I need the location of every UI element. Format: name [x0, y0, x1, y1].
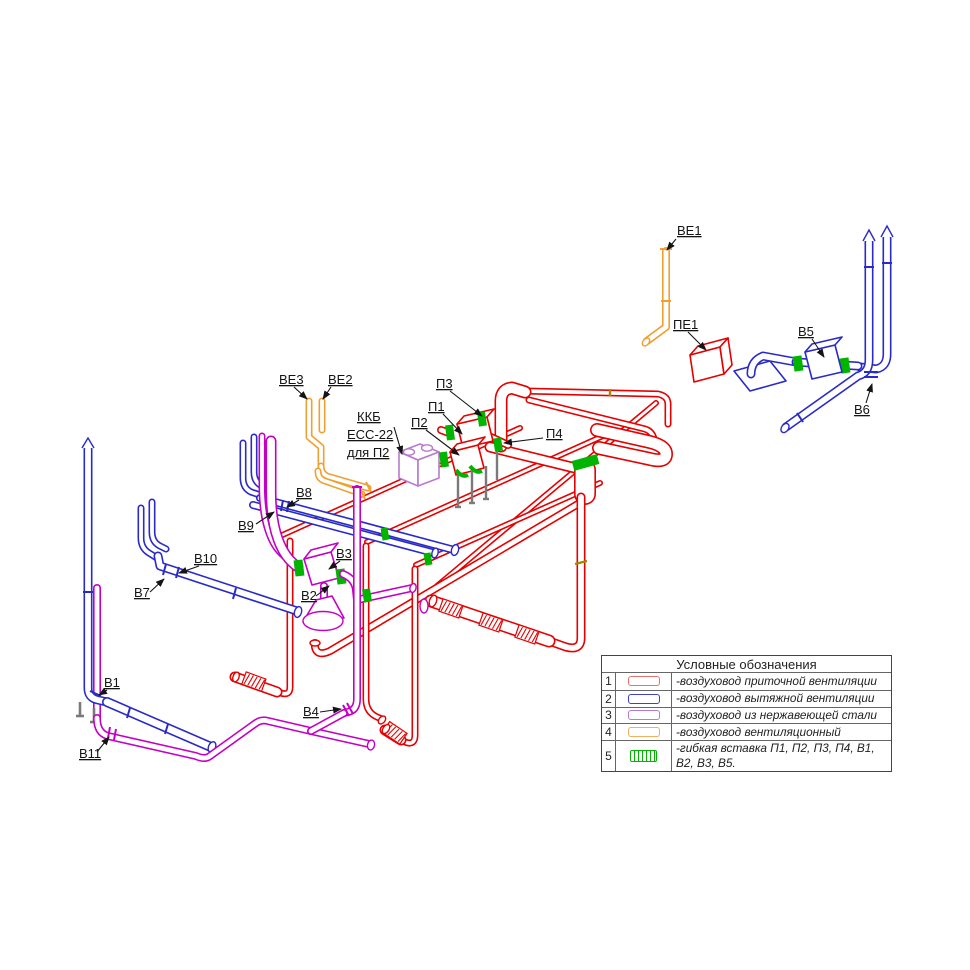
label-v8: В8 — [296, 485, 312, 500]
flex-insert-v5-left — [797, 356, 799, 371]
flex-insert-v3-left — [298, 560, 300, 576]
label-pe1: ПЕ1 — [673, 317, 698, 332]
label-kkb-2: ЕСС-22 — [347, 427, 393, 442]
legend-row-num: 4 — [602, 724, 616, 741]
legend-swatch-supply — [616, 673, 672, 691]
legend-swatch-flex — [616, 741, 672, 772]
label-v1: В1 — [104, 675, 120, 690]
kkb-unit — [399, 444, 439, 486]
legend-row-desc: -воздуховод вытяжной вентиляции — [672, 691, 891, 708]
label-p4: П4 — [546, 426, 563, 441]
piping-canvas: ВЕ1 ПЕ1 В5 В6 ВЕ3 ВЕ2 ККБ ЕСС-22 для П2 … — [0, 0, 970, 970]
legend-row-desc: -гибкая вставка П1, П2, П3, П4, В1, В2, … — [672, 741, 891, 772]
legend: Условные обозначения 1 -воздуховод прито… — [601, 655, 892, 772]
legend-row-num: 3 — [602, 708, 616, 725]
legend-swatch-exhaust — [616, 691, 672, 708]
legend-swatch-stainless — [616, 708, 672, 725]
label-p3: П3 — [436, 376, 453, 391]
label-v6: В6 — [854, 402, 870, 417]
label-v2: В2 — [301, 588, 317, 603]
label-v4: В4 — [303, 704, 319, 719]
legend-row-num: 1 — [602, 673, 616, 691]
label-v10: В10 — [194, 551, 217, 566]
legend-row-desc: -воздуховод вентиляционный — [672, 724, 891, 741]
label-v3: В3 — [336, 546, 352, 561]
label-ve1: ВЕ1 — [677, 223, 702, 238]
label-v5: В5 — [798, 324, 814, 339]
label-kkb-1: ККБ — [357, 409, 381, 424]
legend-swatch-vent — [616, 724, 672, 741]
label-p2: П2 — [411, 415, 428, 430]
legend-row-desc: -воздуховод приточной вентиляции — [672, 673, 891, 691]
legend-row-num: 5 — [602, 741, 616, 772]
flex-insert-v5-right — [844, 358, 846, 373]
legend-row-desc: -воздуховод из нержавеющей стали — [672, 708, 891, 725]
ventilation-isometric-drawing: ВЕ1 ПЕ1 В5 В6 ВЕ3 ВЕ2 ККБ ЕСС-22 для П2 … — [0, 0, 970, 970]
label-v7: В7 — [134, 585, 150, 600]
label-p1: П1 — [428, 399, 445, 414]
label-ve3: ВЕ3 — [279, 372, 304, 387]
label-kkb-3: для П2 — [347, 445, 389, 460]
legend-title: Условные обозначения — [602, 656, 891, 673]
legend-row-num: 2 — [602, 691, 616, 708]
label-v11: В11 — [79, 746, 101, 761]
label-v9: В9 — [238, 518, 254, 533]
label-ve2: ВЕ2 — [328, 372, 353, 387]
